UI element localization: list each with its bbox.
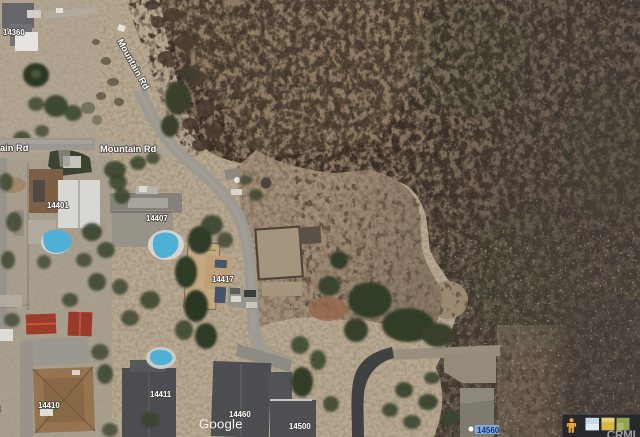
- svg-text:14401: 14401: [47, 201, 69, 210]
- svg-text:14411: 14411: [150, 390, 172, 399]
- svg-text:14417: 14417: [212, 275, 234, 284]
- svg-text:14360: 14360: [3, 28, 25, 37]
- svg-text:14560: 14560: [477, 426, 500, 435]
- svg-text:Mountain Rd: Mountain Rd: [100, 144, 157, 154]
- svg-text:14407: 14407: [146, 214, 168, 223]
- svg-text:CRMLS: CRMLS: [607, 429, 640, 437]
- svg-text:ain Rd: ain Rd: [0, 143, 29, 153]
- svg-text:14500: 14500: [289, 422, 311, 431]
- svg-text:14410: 14410: [38, 401, 60, 410]
- svg-text:Google: Google: [199, 417, 243, 432]
